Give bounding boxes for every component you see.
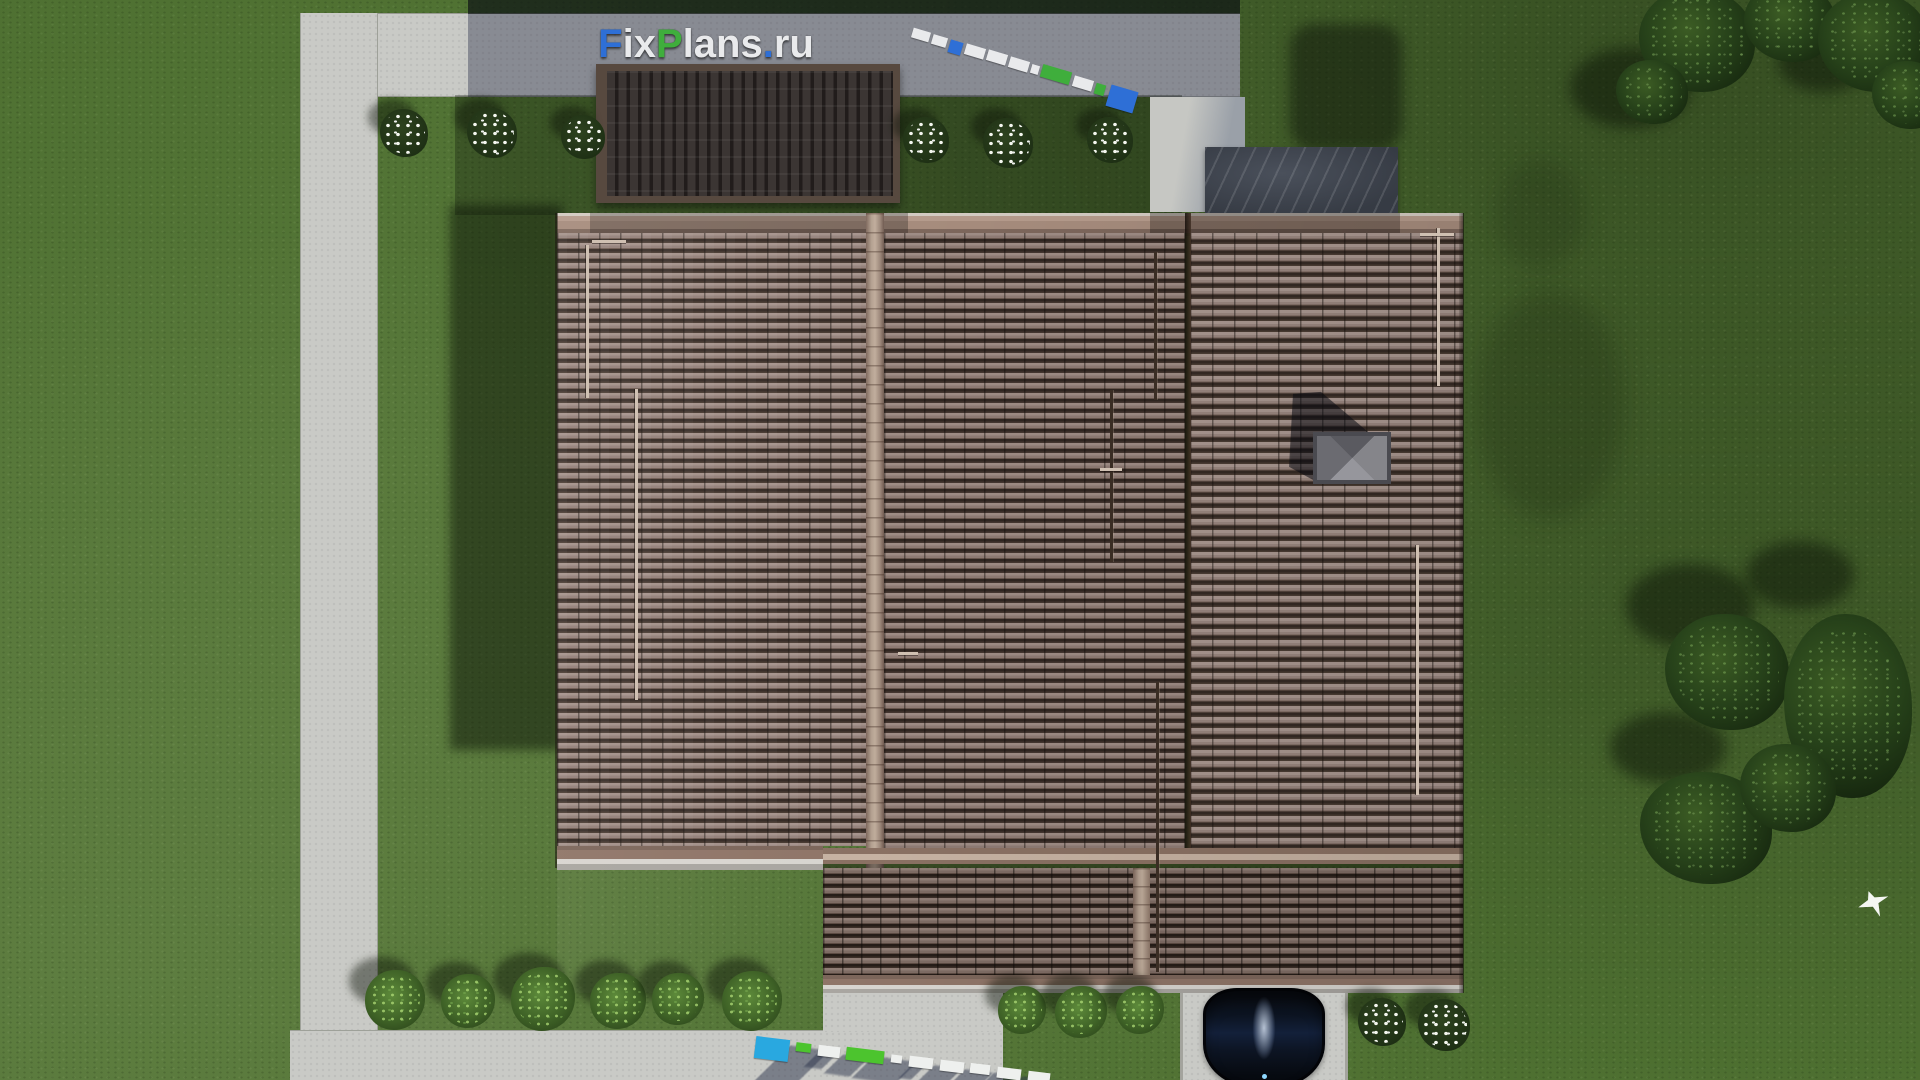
flower-bush: [1418, 999, 1470, 1051]
roof-ridge-cap: [866, 213, 884, 868]
roof-rail: [586, 245, 589, 398]
brand-logo: FixPlans.ru: [590, 22, 822, 66]
brand-logo-segment: P: [656, 24, 683, 64]
flower-bush: [561, 115, 605, 159]
chimney-cap: [1313, 432, 1391, 484]
roof-rail: [1110, 390, 1113, 562]
roof-eave-left-bottom: [557, 846, 823, 870]
roof-rail: [1154, 252, 1157, 400]
terrace-shadow: [1290, 24, 1402, 150]
flower-bush: [1358, 998, 1406, 1046]
tree-canopy: [1740, 744, 1836, 832]
roof-rail: [1437, 228, 1440, 386]
brand-logo-segment: F: [598, 24, 622, 64]
roof-tiles-right-wing: [1190, 233, 1463, 850]
brand-logo-segment: ix: [623, 24, 656, 64]
roof-tiles-center-wing: [884, 233, 1185, 850]
watermark-block: [939, 1059, 964, 1073]
watermark-block: [754, 1036, 790, 1062]
tree-shadow-blob: [1475, 290, 1625, 520]
porch-paving: [823, 993, 1003, 1032]
roof-rail: [1156, 682, 1159, 972]
terrace-marble-deck: [1205, 147, 1398, 213]
flower-bush: [983, 118, 1033, 168]
brand-logo-segment: lans: [683, 24, 763, 64]
watermark-block: [795, 1042, 811, 1053]
roof-snow-guard: [1100, 468, 1122, 471]
flower-bush: [380, 109, 428, 157]
left-walkway: [300, 13, 378, 1035]
tree-shadow: [1746, 541, 1854, 609]
roof-tiles-left-wing: [557, 233, 866, 846]
watermark-block: [817, 1044, 840, 1058]
house-west-shadow: [450, 205, 562, 750]
roof-snow-guard: [592, 240, 626, 243]
roof-edge-right: [1459, 213, 1464, 993]
roof-valley: [1185, 213, 1191, 850]
roof-snow-guard: [1420, 233, 1454, 236]
flower-bush: [903, 117, 949, 163]
brand-logo-segment: ru: [774, 24, 814, 64]
brand-logo-segment: .: [763, 24, 774, 64]
porch-eave-top: [823, 848, 1463, 868]
tree-canopy: [1616, 60, 1688, 124]
car-front-light: [1262, 1074, 1267, 1079]
flower-bush: [467, 108, 517, 158]
flower-bush: [1087, 117, 1133, 163]
pergola-roof: [596, 64, 900, 203]
porch-ridge-cap: [1133, 868, 1150, 978]
car: [1203, 988, 1325, 1080]
aerial-house-render: FixPlans.ru: [0, 0, 1920, 1080]
tree-shadow-blob: [1495, 160, 1585, 270]
roof-rail: [635, 389, 638, 700]
roof-edge-left: [555, 213, 558, 868]
watermark-block: [997, 1066, 1022, 1080]
pergola-cast-shadow: [590, 213, 908, 235]
watermark-block: [891, 1054, 903, 1063]
roof-snow-guard: [898, 652, 918, 655]
roof-rail: [1416, 545, 1419, 795]
hedge-shadow-strip: [468, 0, 1240, 14]
